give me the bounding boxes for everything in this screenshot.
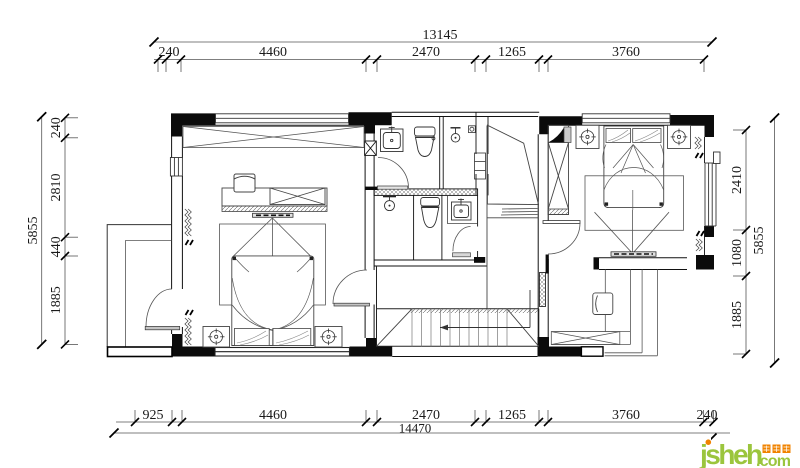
- svg-text:3760: 3760: [612, 408, 640, 423]
- svg-text:1080: 1080: [730, 239, 745, 267]
- svg-text:240: 240: [159, 45, 180, 60]
- svg-text:13145: 13145: [423, 28, 458, 43]
- svg-text:14470: 14470: [399, 421, 432, 436]
- svg-text:4460: 4460: [259, 408, 287, 423]
- svg-text:5855: 5855: [752, 227, 767, 255]
- svg-text:1885: 1885: [49, 286, 64, 314]
- svg-text:2410: 2410: [730, 166, 745, 194]
- svg-text:925: 925: [143, 408, 164, 423]
- svg-text:5855: 5855: [26, 217, 41, 245]
- svg-text:240: 240: [49, 117, 64, 138]
- svg-text:240: 240: [697, 408, 718, 423]
- svg-text:.com: .com: [756, 453, 791, 468]
- svg-text:2810: 2810: [49, 174, 64, 202]
- svg-text:4460: 4460: [259, 45, 287, 60]
- svg-text:1265: 1265: [498, 408, 526, 423]
- svg-text:440: 440: [49, 236, 64, 257]
- svg-text:1885: 1885: [730, 301, 745, 329]
- svg-text:2470: 2470: [412, 45, 440, 60]
- svg-text:3760: 3760: [612, 45, 640, 60]
- svg-text:1265: 1265: [498, 45, 526, 60]
